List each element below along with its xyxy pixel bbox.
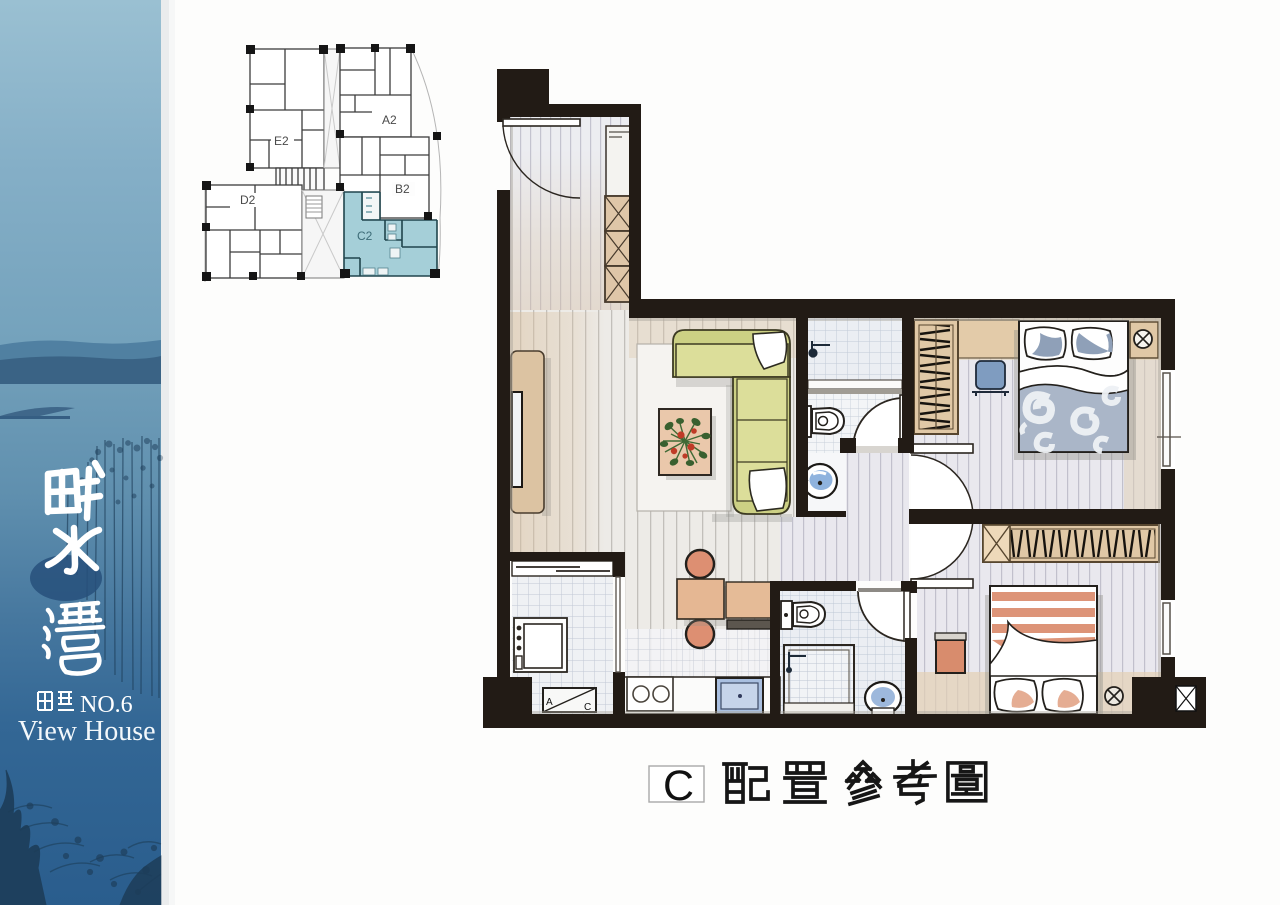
svg-text:B2: B2 (395, 182, 410, 196)
svg-text:A: A (546, 697, 553, 708)
svg-text:C: C (663, 762, 694, 810)
svg-text:View House: View House (18, 716, 156, 747)
svg-text:E2: E2 (274, 134, 289, 148)
svg-text:NO.6: NO.6 (80, 692, 133, 718)
svg-text:C2: C2 (357, 229, 373, 243)
svg-text:A2: A2 (382, 113, 397, 127)
svg-text:D2: D2 (240, 193, 256, 207)
